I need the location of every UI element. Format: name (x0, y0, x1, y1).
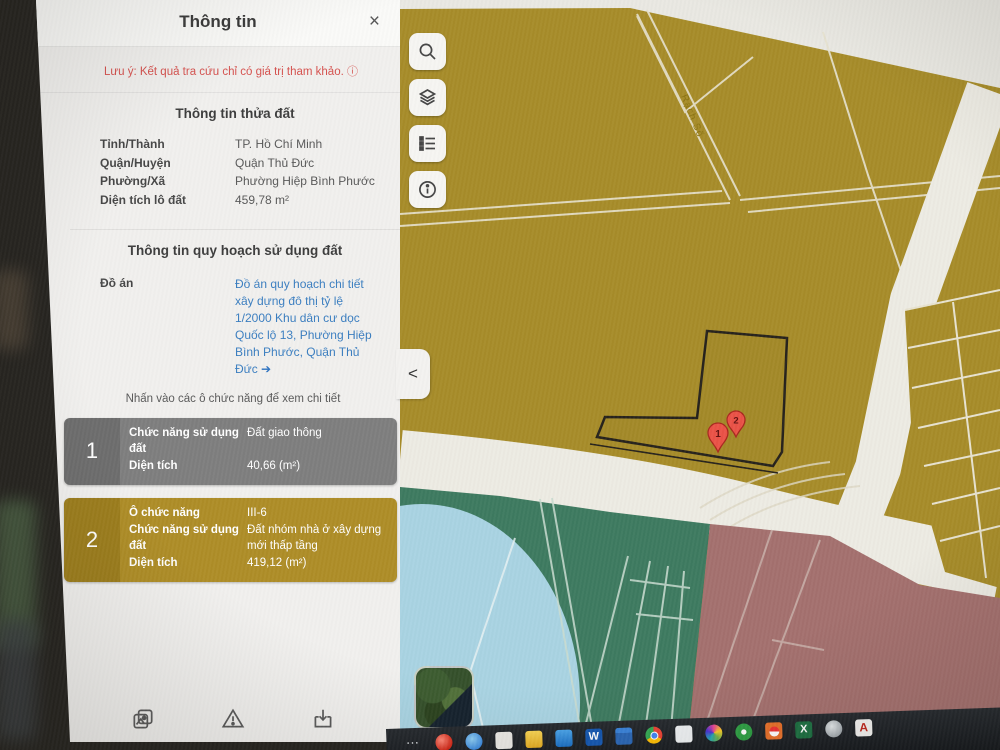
layers-button[interactable] (409, 79, 446, 116)
function-card-2[interactable]: 2 Ô chức năng III-6 Chức năng sử dụng đấ… (64, 498, 397, 582)
legend-list-icon (417, 133, 438, 154)
map-toolbar (409, 33, 446, 208)
taskbar-calculator-icon[interactable] (615, 727, 633, 745)
parcel-info-rows: Tỉnh/Thành TP. Hồ Chí Minh Quận/Huyện Qu… (36, 131, 400, 219)
close-icon[interactable]: × (369, 11, 380, 33)
export-image-icon (130, 706, 156, 732)
info-button[interactable] (409, 171, 446, 208)
panel-footer-toolbar (100, 706, 366, 732)
card-row-value: Đất nhóm nhà ở xây dựng mới thấp tầng (247, 523, 389, 554)
project-section: Đồ án Đồ án quy hoạch chi tiết xây dựng … (36, 268, 400, 378)
row-label: Phường/Xã (100, 172, 235, 191)
info-row: Phường/Xã Phường Hiệp Bình Phước (100, 172, 390, 191)
taskbar-mail-icon[interactable] (555, 730, 573, 748)
info-row: Quận/Huyện Quận Thủ Đức (100, 154, 390, 173)
taskbar-app-icon[interactable] (735, 723, 753, 741)
taskbar-word-icon[interactable]: W (585, 728, 603, 746)
taskbar-overflow-icon[interactable]: ⋯ (402, 735, 423, 750)
row-value: 459,78 m² (235, 191, 390, 210)
card-row-value: 419,12 (m²) (247, 556, 389, 572)
taskbar-chrome-icon[interactable] (645, 726, 663, 744)
info-row: Diện tích lô đất 459,78 m² (100, 191, 390, 210)
section-divider (70, 229, 400, 230)
card-row-label: Chức năng sử dụng đất (129, 523, 247, 554)
card-row-value: III-6 (247, 506, 389, 522)
layers-icon (417, 87, 438, 108)
card-row-label: Diện tích (129, 459, 247, 475)
function-card-1[interactable]: 1 Chức năng sử dụng đất Đất giao thông D… (64, 418, 397, 485)
card-row-label: Diện tích (129, 556, 247, 572)
download-icon (310, 706, 336, 732)
project-link-text: Đồ án quy hoạch chi tiết xây dựng đô thị… (235, 277, 372, 376)
card-body: Ô chức năng III-6 Chức năng sử dụng đất … (120, 498, 397, 582)
warning-triangle-icon (220, 706, 246, 732)
planning-section-heading: Thông tin quy hoạch sử dụng đất (70, 243, 400, 258)
row-value: Phường Hiệp Bình Phước (235, 172, 390, 191)
taskbar-excel-icon[interactable]: X (795, 721, 813, 739)
taskbar-browser-icon[interactable] (465, 733, 483, 750)
project-label: Đồ án (100, 276, 235, 378)
search-button[interactable] (409, 33, 446, 70)
taskbar-paint-icon[interactable] (705, 724, 723, 742)
arrow-right-icon[interactable]: ➔ (261, 362, 271, 376)
taskbar-store-icon[interactable] (495, 732, 513, 750)
taskbar-app-icon[interactable] (825, 720, 843, 738)
panel-header: Thông tin × (36, 0, 400, 47)
row-label: Quận/Huyện (100, 154, 235, 173)
row-value: TP. Hồ Chí Minh (235, 135, 390, 154)
svg-text:2: 2 (733, 416, 738, 427)
taskbar-app-icon[interactable] (435, 734, 453, 750)
planning-map[interactable]: Rạch Số 2 1 (400, 0, 1000, 750)
warning-text: Lưu ý: Kết quả tra cứu chỉ có giá trị th… (104, 66, 344, 78)
search-icon (417, 41, 438, 62)
card-row-value: Đất giao thông (247, 426, 389, 457)
taskbar-folder-icon[interactable] (525, 731, 543, 749)
info-icon (417, 179, 438, 200)
panel-collapse-button[interactable]: < (396, 349, 430, 399)
card-number: 2 (64, 498, 120, 582)
background-blur (0, 620, 36, 740)
warning-note: Lưu ý: Kết quả tra cứu chỉ có giá trị th… (36, 47, 400, 93)
basemap-thumbnail[interactable] (414, 666, 474, 729)
taskbar-autocad-icon[interactable]: A (855, 719, 873, 737)
monitor-photo: Rạch Số 2 1 (0, 0, 1000, 750)
card-number: 1 (64, 418, 120, 485)
background-blur (0, 270, 28, 350)
panel-title: Thông tin (36, 12, 400, 32)
warning-report-button[interactable] (220, 706, 246, 732)
project-link[interactable]: Đồ án quy hoạch chi tiết xây dựng đô thị… (235, 276, 380, 378)
warning-info-icon[interactable]: ⓘ (347, 66, 358, 78)
info-panel: Thông tin × Lưu ý: Kết quả tra cứu chỉ c… (36, 0, 400, 742)
map-canvas[interactable]: Rạch Số 2 1 (400, 0, 1000, 750)
hint-text: Nhấn vào các ô chức năng để xem chi tiết (36, 393, 400, 405)
export-image-button[interactable] (130, 706, 156, 732)
taskbar-app-icon[interactable] (765, 722, 783, 740)
row-value: Quận Thủ Đức (235, 154, 390, 173)
svg-text:1: 1 (715, 429, 721, 440)
chevron-left-icon: < (408, 364, 418, 384)
download-button[interactable] (310, 706, 336, 732)
card-body: Chức năng sử dụng đất Đất giao thông Diệ… (120, 418, 397, 485)
card-row-label: Chức năng sử dụng đất (129, 426, 247, 457)
row-label: Tỉnh/Thành (100, 135, 235, 154)
parcel-section-heading: Thông tin thửa đất (70, 106, 400, 121)
info-row: Tỉnh/Thành TP. Hồ Chí Minh (100, 135, 390, 154)
row-label: Diện tích lô đất (100, 191, 235, 210)
card-row-value: 40,66 (m²) (247, 459, 389, 475)
card-row-label: Ô chức năng (129, 506, 247, 522)
taskbar-app-icon[interactable] (675, 725, 693, 743)
legend-button[interactable] (409, 125, 446, 162)
